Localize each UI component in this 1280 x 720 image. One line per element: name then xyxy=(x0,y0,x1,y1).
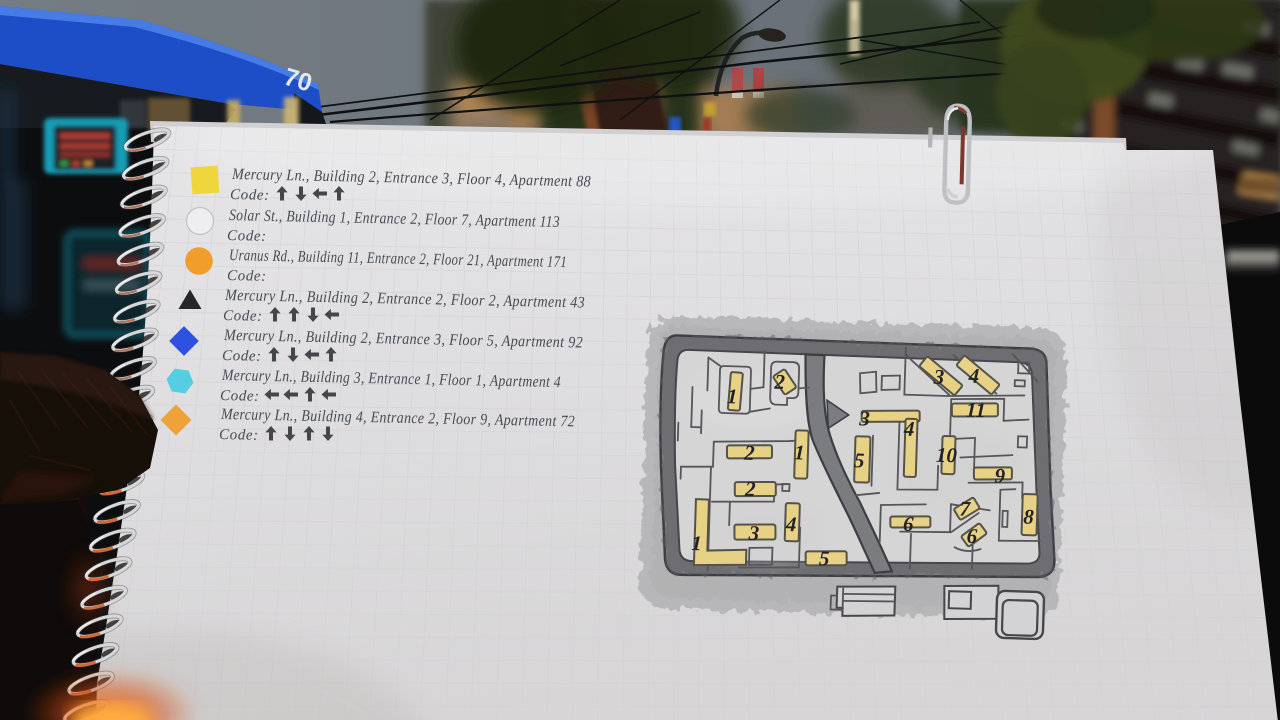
svg-text:2: 2 xyxy=(743,441,756,465)
svg-text:5: 5 xyxy=(854,448,865,472)
svg-text:Code:: Code: xyxy=(227,228,267,245)
svg-text:3: 3 xyxy=(747,521,759,545)
svg-text:11: 11 xyxy=(966,398,987,423)
svg-text:Code:: Code: xyxy=(220,388,260,405)
svg-text:6: 6 xyxy=(903,512,915,536)
svg-text:5: 5 xyxy=(819,546,830,570)
svg-text:3: 3 xyxy=(858,406,870,430)
svg-text:8: 8 xyxy=(1023,504,1035,528)
svg-text:3: 3 xyxy=(932,365,944,389)
svg-text:2: 2 xyxy=(773,370,786,394)
svg-text:Code:: Code: xyxy=(222,348,262,365)
svg-text:Code:: Code: xyxy=(223,308,263,325)
svg-text:1: 1 xyxy=(794,440,805,464)
svg-text:Code:: Code: xyxy=(219,427,259,444)
svg-text:Code:: Code: xyxy=(227,268,267,285)
svg-text:Code:: Code: xyxy=(230,187,270,204)
svg-text:9: 9 xyxy=(994,464,1006,488)
svg-text:2: 2 xyxy=(744,477,757,501)
svg-text:1: 1 xyxy=(727,384,738,408)
svg-text:4: 4 xyxy=(903,417,915,441)
svg-text:4: 4 xyxy=(785,512,797,536)
svg-text:6: 6 xyxy=(966,524,978,548)
svg-text:10: 10 xyxy=(936,443,958,468)
svg-text:4: 4 xyxy=(967,364,979,388)
svg-text:1: 1 xyxy=(691,531,702,555)
